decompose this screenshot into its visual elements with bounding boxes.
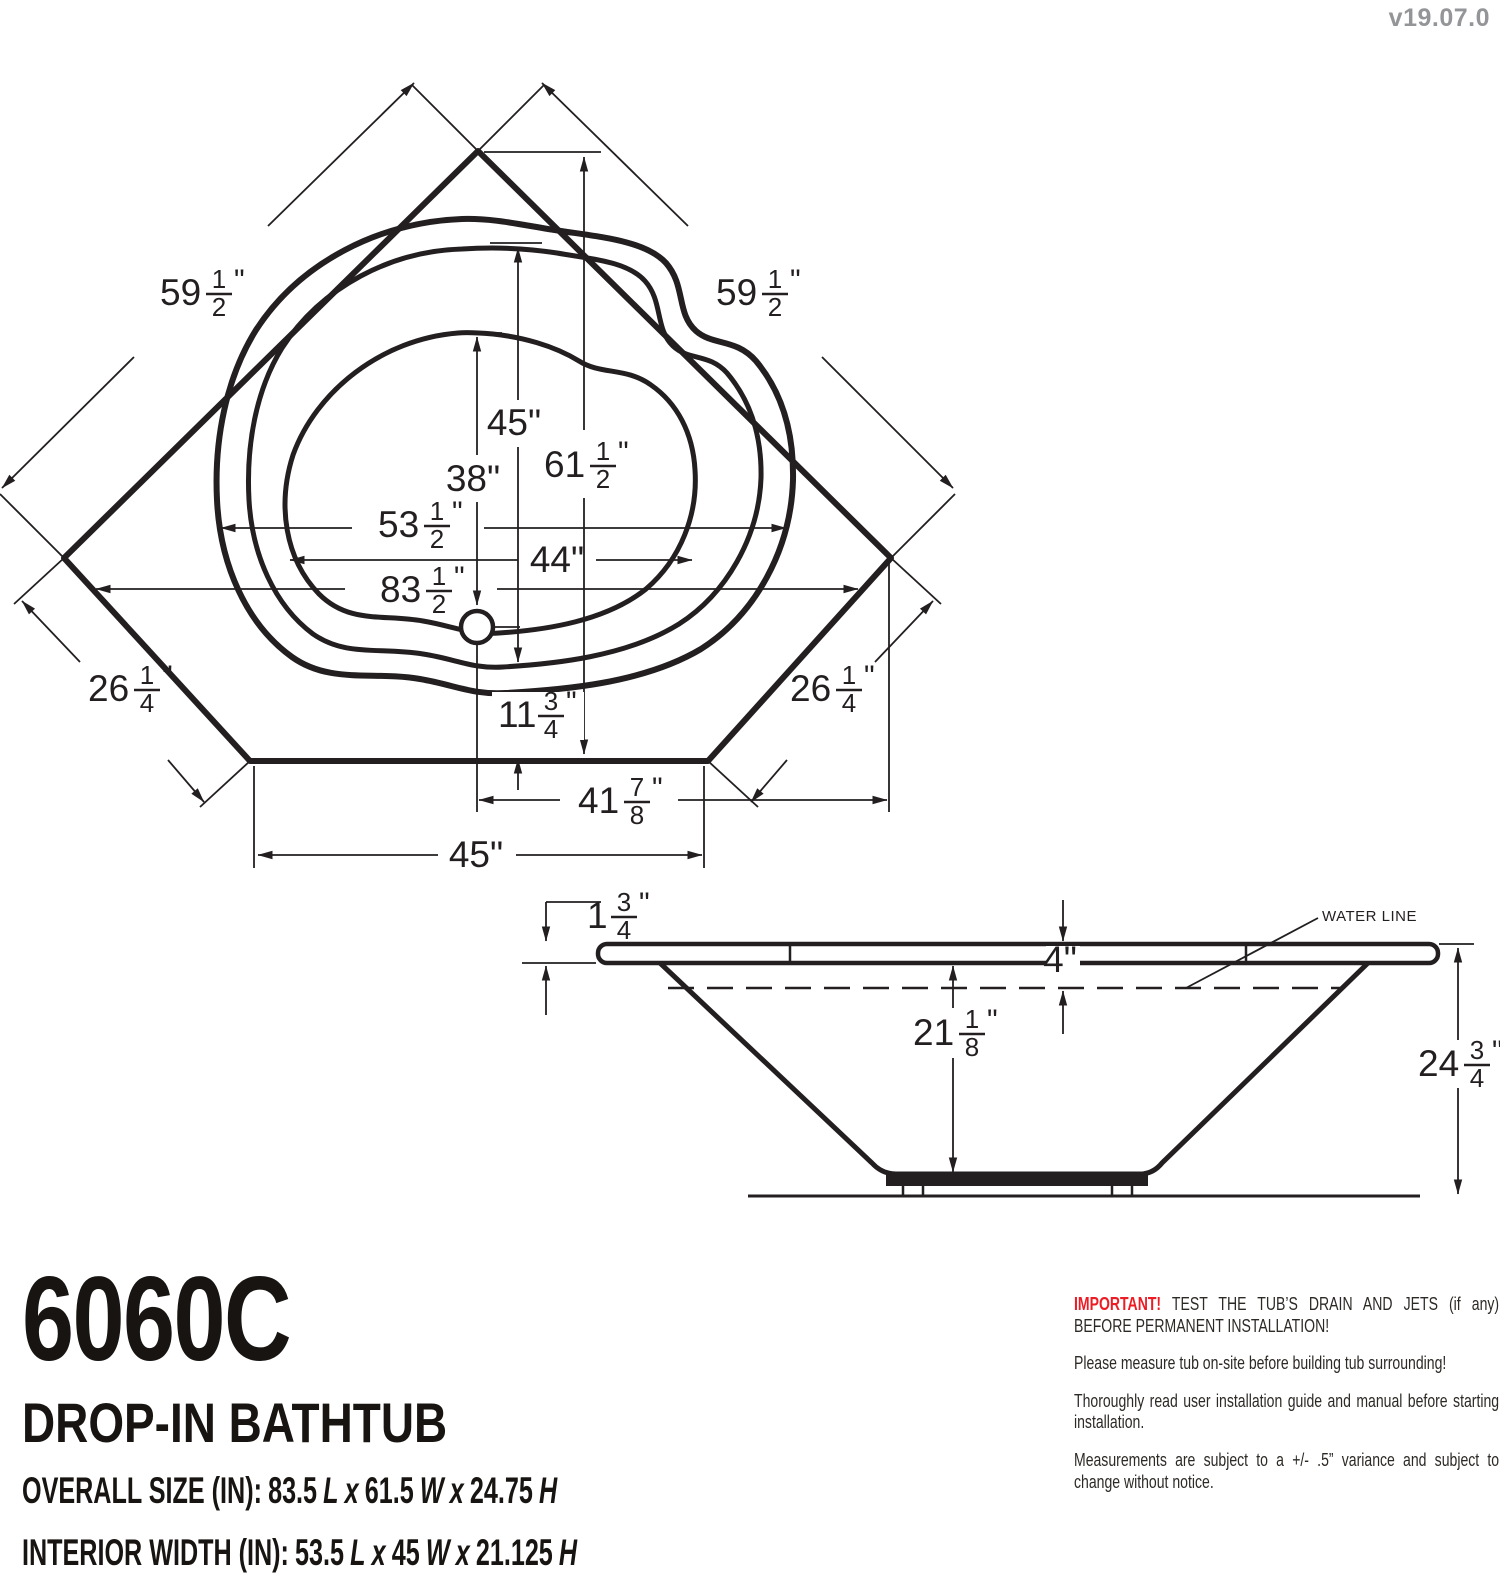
- dim-label-drain-offset: 41 7 8 ": [578, 772, 663, 830]
- svg-text:26: 26: [790, 668, 831, 709]
- dim-label-interior-width: 53 1 2 ": [378, 496, 463, 554]
- dim-label-rim-thickness: 1 3 4 ": [587, 887, 650, 945]
- svg-text:": ": [987, 1004, 998, 1037]
- note-read-guide: Thoroughly read user installation guide …: [1074, 1391, 1499, 1434]
- dim-label-corner-right: 26 1 4 ": [790, 660, 875, 718]
- svg-text:1: 1: [140, 660, 154, 690]
- svg-text:4: 4: [617, 915, 631, 945]
- svg-text:61: 61: [544, 444, 585, 485]
- note-important: IMPORTANT! TEST THE TUB’S DRAIN AND JETS…: [1074, 1294, 1499, 1337]
- svg-text:24: 24: [1418, 1043, 1459, 1084]
- svg-text:1: 1: [432, 561, 446, 591]
- rim-profile: [598, 944, 1438, 963]
- installation-notes: IMPORTANT! TEST THE TUB’S DRAIN AND JETS…: [1074, 1294, 1499, 1509]
- svg-text:2: 2: [596, 464, 610, 494]
- water-line-label: WATER LINE: [1322, 908, 1417, 925]
- svg-text:2: 2: [212, 292, 226, 322]
- note-measure: Please measure tub on-site before buildi…: [1074, 1353, 1499, 1375]
- svg-text:3: 3: [617, 887, 631, 917]
- dim-label-waterline-depth: 4": [1043, 939, 1077, 980]
- dim-label-basin-length: 38": [446, 458, 500, 499]
- svg-text:1: 1: [430, 496, 444, 526]
- svg-text:": ": [864, 660, 875, 693]
- svg-text:": ": [454, 561, 465, 594]
- overall-size-line: OVERALL SIZE (IN):83.5Lx61.5Wx24.75H: [22, 1470, 563, 1512]
- important-label: IMPORTANT!: [1074, 1294, 1161, 1314]
- svg-text:7: 7: [630, 772, 644, 802]
- note-variance: Measurements are subject to a +/- .5” va…: [1074, 1450, 1499, 1493]
- svg-text:": ": [652, 772, 663, 805]
- dim-label-basin-width: 44": [530, 539, 584, 580]
- svg-text:": ": [162, 660, 173, 693]
- svg-text:1: 1: [596, 436, 610, 466]
- svg-text:": ": [566, 686, 577, 719]
- svg-text:41: 41: [578, 780, 619, 821]
- svg-text:8: 8: [965, 1032, 979, 1062]
- tub-base: [886, 1174, 1148, 1186]
- dim-label-front-width: 45": [449, 834, 503, 875]
- svg-text:1: 1: [212, 264, 226, 294]
- interior-size-line: INTERIOR WIDTH (IN):53.5Lx45Wx21.125H: [22, 1532, 583, 1574]
- svg-text:3: 3: [544, 686, 558, 716]
- dim-label-edge-left: 59 1 2 ": [160, 264, 245, 322]
- svg-text:59: 59: [160, 272, 201, 313]
- svg-text:2: 2: [432, 589, 446, 619]
- svg-text:": ": [452, 496, 463, 529]
- svg-text:3: 3: [1470, 1035, 1484, 1065]
- tub-rim-contour: [217, 219, 794, 693]
- svg-text:53: 53: [378, 504, 419, 545]
- top-view: 59 1 2 " 59 1 2 " 61 1 2 " 53 1 2 ": [0, 83, 955, 875]
- version-number: v19.07.0: [1389, 4, 1490, 33]
- dim-label-interior-depth: 21 1 8 ": [913, 1004, 998, 1062]
- dim-label-edge-right: 59 1 2 ": [716, 264, 801, 322]
- svg-text:1: 1: [842, 660, 856, 690]
- svg-text:4: 4: [842, 688, 856, 718]
- svg-text:": ": [790, 264, 801, 297]
- dim-label-corner-left: 26 1 4 ": [88, 660, 173, 718]
- svg-text:4: 4: [1470, 1063, 1484, 1093]
- svg-text:26: 26: [88, 668, 129, 709]
- svg-text:8: 8: [630, 800, 644, 830]
- svg-text:2: 2: [768, 292, 782, 322]
- side-view: WATER LINE 1 3 4 " 4" 21 1: [522, 887, 1500, 1196]
- svg-text:83: 83: [380, 569, 421, 610]
- drain: [461, 611, 520, 643]
- drain-circle: [461, 611, 493, 643]
- svg-text:2: 2: [430, 524, 444, 554]
- svg-text:4: 4: [140, 688, 154, 718]
- svg-text:59: 59: [716, 272, 757, 313]
- dim-label-overall-length: 83 1 2 ": [380, 561, 465, 619]
- bathtub-spec-drawing: 59 1 2 " 59 1 2 " 61 1 2 " 53 1 2 ": [0, 0, 1500, 1240]
- svg-text:1: 1: [768, 264, 782, 294]
- svg-text:11: 11: [498, 694, 536, 735]
- svg-text:": ": [618, 436, 629, 469]
- svg-text:": ": [234, 264, 245, 297]
- dim-label-overall-height: 24 3 4 ": [1418, 1035, 1500, 1093]
- title-block: 6060C DROP-IN BATHTUB OVERALL SIZE (IN):…: [22, 1262, 762, 1376]
- tub-body-profile: [660, 963, 1368, 1174]
- svg-text:": ": [639, 887, 650, 920]
- svg-text:1: 1: [965, 1004, 979, 1034]
- product-type: DROP-IN BATHTUB: [22, 1390, 447, 1455]
- svg-text:": ": [1492, 1035, 1500, 1068]
- dim-label-interior-length: 45": [487, 402, 541, 443]
- svg-text:4: 4: [544, 714, 558, 744]
- model-number: 6060C: [22, 1262, 599, 1376]
- interior-size-label: INTERIOR WIDTH (IN):: [22, 1532, 289, 1573]
- overall-size-label: OVERALL SIZE (IN):: [22, 1470, 262, 1511]
- svg-text:1: 1: [587, 895, 608, 936]
- svg-text:21: 21: [913, 1012, 954, 1053]
- dim-label-overall-width: 61 1 2 ": [544, 436, 629, 494]
